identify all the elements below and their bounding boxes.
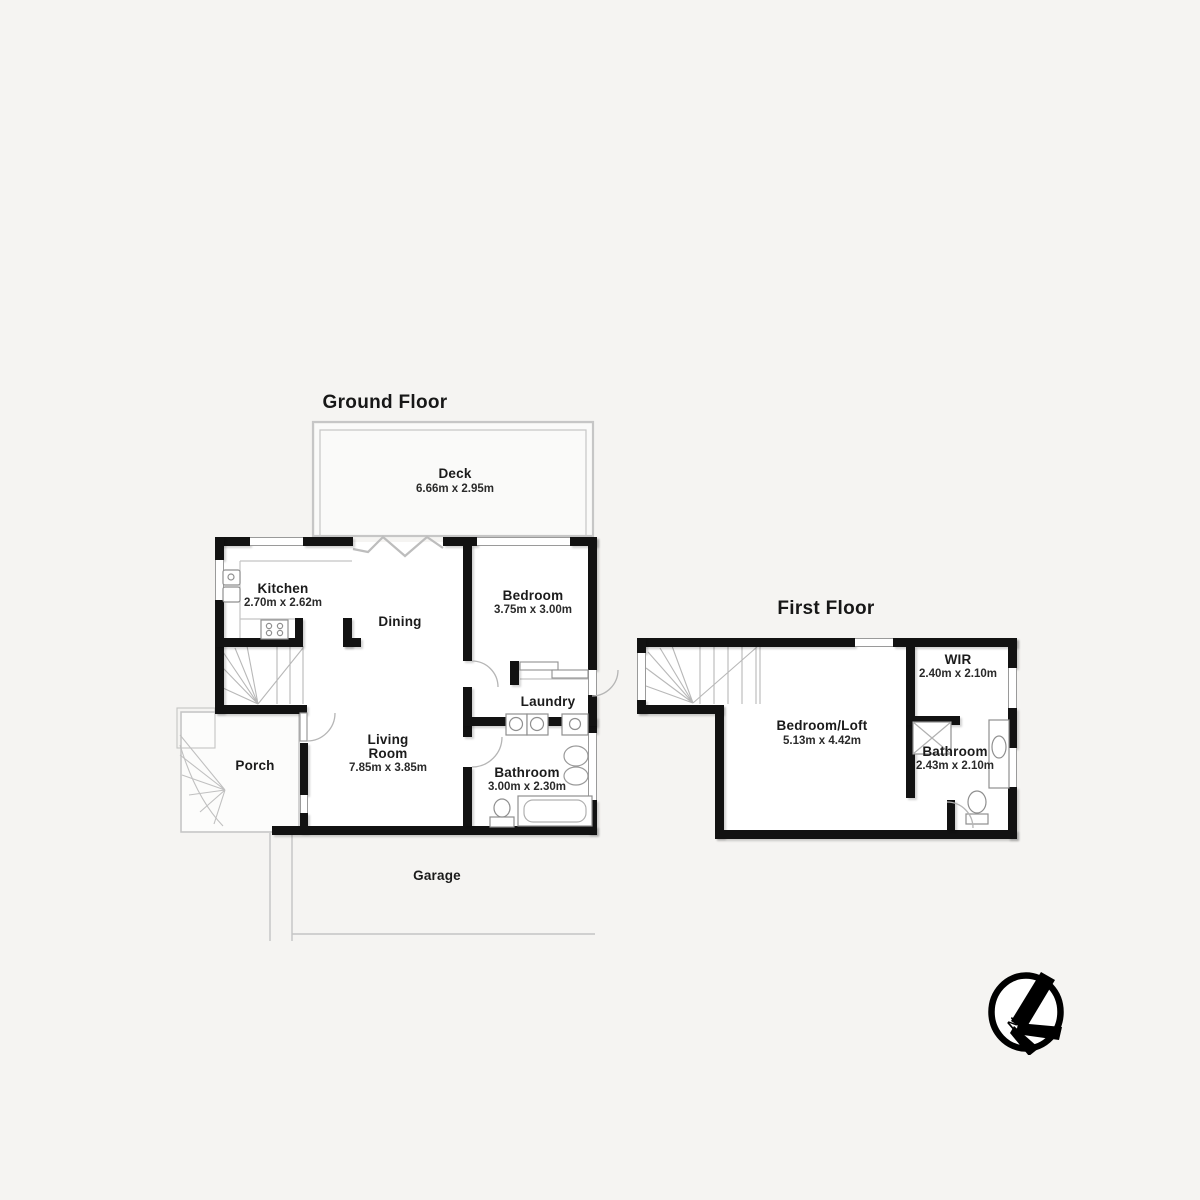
room-label-dining: Dining bbox=[340, 615, 460, 629]
wall-segment bbox=[715, 830, 1017, 839]
wall-segment bbox=[215, 638, 295, 647]
room-label-garage: Garage bbox=[377, 869, 497, 883]
window-marker bbox=[250, 537, 303, 546]
wall-segment bbox=[637, 638, 646, 653]
wall-segment bbox=[947, 800, 955, 830]
window-marker bbox=[477, 537, 570, 546]
room-label-kitchen: Kitchen bbox=[213, 582, 353, 596]
room-label-deck: Deck bbox=[385, 467, 525, 481]
room-label-bedroom-loft: Bedroom/Loft bbox=[737, 719, 907, 733]
room-label-laundry: Laundry bbox=[488, 695, 608, 709]
room-label-ff-bathroom: Bathroom bbox=[885, 745, 1025, 759]
wall-segment bbox=[215, 705, 307, 714]
room-dims-bedroom: 3.75m x 3.00m bbox=[463, 604, 603, 617]
ground-floor-title: Ground Floor bbox=[265, 393, 505, 413]
room-label-wir: WIR bbox=[898, 653, 1018, 667]
window-marker bbox=[300, 795, 308, 813]
wall-segment bbox=[906, 716, 960, 725]
wall-segment bbox=[272, 826, 597, 835]
wall-segment bbox=[295, 618, 303, 647]
wall-segment bbox=[1008, 708, 1017, 748]
wall-segment bbox=[588, 800, 597, 834]
wall-segment bbox=[215, 537, 224, 560]
window-marker bbox=[855, 638, 893, 647]
garage-outline-icon bbox=[270, 833, 595, 941]
first-floor-title: First Floor bbox=[736, 599, 916, 619]
window-marker bbox=[637, 653, 646, 700]
wall-segment bbox=[510, 661, 519, 685]
wall-segment bbox=[303, 537, 353, 546]
wall-segment bbox=[1008, 787, 1017, 839]
room-label-bedroom: Bedroom bbox=[463, 589, 603, 603]
room-dims-bathroom: 3.00m x 2.30m bbox=[457, 781, 597, 794]
room-dims-deck: 6.66m x 2.95m bbox=[385, 483, 525, 496]
wall-segment bbox=[637, 638, 855, 647]
wall-segment bbox=[463, 687, 472, 737]
room-dims-wir: 2.40m x 2.10m bbox=[898, 668, 1018, 681]
wall-segment bbox=[343, 638, 361, 647]
room-dims-kitchen: 2.70m x 2.62m bbox=[213, 597, 353, 610]
room-label-living-room: Living Room bbox=[348, 733, 428, 761]
wall-segment bbox=[463, 717, 597, 726]
wall-segment bbox=[715, 705, 724, 838]
brand-compass-logo: N bbox=[986, 971, 1066, 1055]
room-label-bathroom: Bathroom bbox=[457, 766, 597, 780]
wall-segment bbox=[215, 600, 224, 713]
room-dims-bedroom-loft: 5.13m x 4.42m bbox=[737, 735, 907, 748]
wall-segment bbox=[463, 545, 472, 661]
floorplan-canvas: Ground Floor Deck 6.66m x 2.95m Kitchen … bbox=[0, 0, 1200, 1200]
room-dims-living-room: 7.85m x 3.85m bbox=[328, 762, 448, 775]
wall-segment bbox=[637, 705, 723, 714]
room-label-porch: Porch bbox=[195, 759, 315, 773]
room-dims-ff-bathroom: 2.43m x 2.10m bbox=[885, 760, 1025, 773]
window-marker bbox=[588, 670, 597, 695]
